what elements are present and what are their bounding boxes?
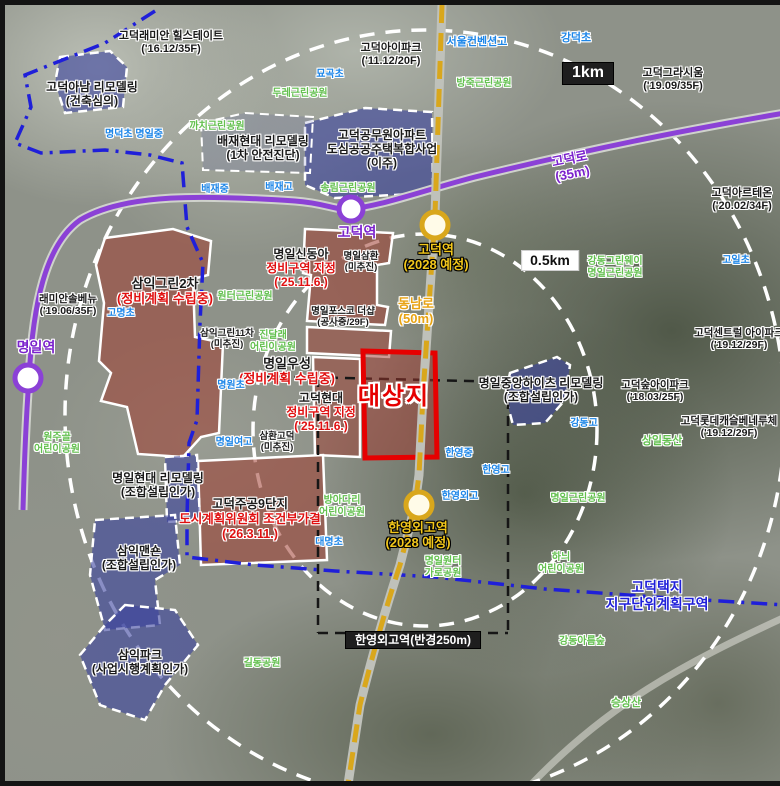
label-gomyeong-elementary-line-0: 고명초: [107, 308, 135, 320]
label-godeok-arteon-line-1: ('20.02/34F): [712, 200, 773, 213]
label-myogok-elementary-line-0: 묘곡초: [316, 69, 344, 81]
label-godeok-jugong9-line-2: ('26.3.11.): [179, 527, 320, 542]
label-hanyeong-station-radius-line-0: 한영외고역(반경250m): [355, 633, 471, 647]
label-myeongil-wonteo-park-line-0: 명일원터: [425, 556, 462, 568]
label-myeongwon-elementary-line-0: 명원초: [217, 380, 245, 392]
label-godeok-gracium-line-0: 고덕그라시움: [643, 67, 704, 80]
label-gangdong-areumsoop: 강동아름숲: [559, 636, 605, 648]
label-myeongil-park: 명일근린공원: [550, 493, 605, 505]
label-godeok-soop-ipark-line-0: 고덕숲아이파크: [621, 379, 689, 391]
label-godeok-arteon: 고덕아르테온('20.02/34F): [712, 187, 773, 213]
label-myeongil-girls-high-line-0: 명일여고: [216, 437, 253, 449]
label-myeongdeok-myeongil-school: 명덕초 명일중: [105, 129, 163, 141]
label-godeok-station-line-0: 고덕역: [338, 224, 377, 241]
label-baejae-middle-line-0: 배재중: [201, 184, 229, 196]
label-gangdeok-elementary-line-0: 강덕초: [561, 32, 591, 45]
label-gildong-park: 길동공원: [244, 658, 281, 670]
label-myeongil-posco-line-0: 명일포스코 더샵: [311, 306, 375, 317]
label-godeok-official-apt-line-1: 도심공공주택복합사업: [327, 142, 437, 156]
label-samik-park: 삼익파크(사업시행계획인가): [92, 648, 188, 676]
label-myeongil-samhwan-line-1: (미추진): [344, 262, 379, 273]
label-hanyeong-station-2028-line-0: 한영외고역: [385, 520, 450, 535]
label-godeok-raemian-hillstate: 고덕래미안 힐스테이트('16.12/35F): [119, 30, 223, 56]
label-goil-elementary: 고일초: [722, 255, 750, 267]
label-godeok-anam-remodeling: 고덕아남 리모델링(건축심의): [46, 80, 138, 108]
label-hanyeong-high-line-0: 한영고: [482, 465, 510, 477]
scale-05km-line-0: 0.5km: [530, 252, 570, 269]
label-godeok-station: 고덕역: [338, 224, 377, 241]
label-jindallae-park-line-0: 진달래: [250, 330, 296, 342]
label-myeongil-posco-line-1: (공사중/29F): [311, 317, 375, 328]
label-baejae-hyundai-remodeling-line-0: 배재현대 리모델링: [217, 134, 309, 148]
label-myeongil-wooseong: 명일우성(정비계획 수립중): [239, 356, 335, 387]
label-godeok-station-2028: 고덕역(2028 예정): [403, 242, 468, 273]
label-kkachi-park: 까치근린공원: [189, 121, 244, 133]
label-wonjugol-park-line-1: 어린이공원: [34, 444, 80, 456]
label-myeongil-hyundai-remodeling: 명일현대 리모델링(조합설립인가): [112, 471, 204, 499]
label-baejae-high: 배재고: [265, 182, 293, 194]
label-gangdong-high: 강동고: [570, 418, 598, 430]
label-raemian-solbenyu-line-1: ('19.06/35F): [39, 305, 97, 317]
label-samik-green2: 삼익그린2차(정비계획 수립중): [117, 276, 213, 307]
label-godeok-lotte-castle: 고덕롯데캐슬베네루체('19.12/29F): [681, 415, 778, 440]
label-godeok-official-apt-line-0: 고덕공무원아파트: [327, 128, 437, 142]
scale-05km: 0.5km: [521, 250, 579, 271]
label-dongnam-ro-line-0: 동남로: [398, 296, 434, 311]
label-godeok-gracium: 고덕그라시움('19.09/35F): [643, 67, 704, 93]
label-hanyeong-high: 한영고: [482, 465, 510, 477]
label-songnim-park: 송림근린공원: [320, 183, 375, 195]
label-myeongil-jungang-heights: 명일중앙하이츠 리모델링(조합설립인가): [479, 376, 604, 404]
label-raemian-solbenyu: 래미안솔베뉴('19.06/35F): [39, 293, 97, 318]
label-hanyeong-middle-line-0: 한영중: [445, 448, 473, 460]
label-godeok-raemian-hillstate-line-0: 고덕래미안 힐스테이트: [119, 30, 223, 43]
label-myeongil-jungang-heights-line-1: (조합설립인가): [479, 390, 604, 404]
label-samhwan-godeok-line-1: (미추진): [260, 442, 295, 453]
label-gildong-park-line-0: 길동공원: [244, 658, 281, 670]
label-godeok-station-2028-line-0: 고덕역: [403, 242, 468, 257]
label-raemian-solbenyu-line-0: 래미안솔베뉴: [39, 293, 97, 305]
label-godeok-anam-remodeling-line-0: 고덕아남 리모델링: [46, 80, 138, 94]
label-gangdong-areumsoop-line-0: 강동아름숲: [559, 636, 605, 648]
label-kkachi-park-line-0: 까치근린공원: [189, 121, 244, 133]
label-myeongil-hyundai-remodeling-line-0: 명일현대 리모델링: [112, 471, 204, 485]
label-samik-park-line-0: 삼익파크: [92, 648, 188, 662]
label-godeok-hyundai-line-2: ('25.11.6.): [286, 419, 356, 433]
label-seungsangsan-line-0: 승상산: [611, 697, 641, 710]
label-daesangji: 대상지: [358, 383, 430, 411]
label-hanyeong-station-2028-line-1: (2028 예정): [385, 535, 450, 550]
label-hanyeong-foreign-high-line-0: 한영외고: [442, 491, 479, 503]
label-myogok-elementary: 묘곡초: [316, 69, 344, 81]
label-baejae-middle: 배재중: [201, 184, 229, 196]
label-myeongil-samhwan: 명일삼환(미추진): [344, 251, 379, 273]
label-myeongil-posco: 명일포스코 더샵(공사중/29F): [311, 306, 375, 328]
label-godeok-ipark-line-1: ('11.12/20F): [361, 55, 422, 68]
label-godeok-official-apt: 고덕공무원아파트도심공공주택복합사업(이주): [327, 128, 437, 170]
label-samik-green11-line-0: 삼익그린11차: [200, 328, 254, 339]
label-godeok-station-2028-line-1: (2028 예정): [403, 257, 468, 272]
label-godeok-soop-ipark-line-1: ('18.03/25F): [621, 391, 689, 403]
label-wonjugol-park-line-0: 원주골: [34, 432, 80, 444]
label-bangjuk-park-line-0: 방죽근린공원: [456, 78, 511, 90]
label-godeok-lotte-castle-line-1: ('19.12/29F): [681, 427, 778, 439]
scale-1km: 1km: [562, 62, 614, 85]
label-godeok-hyundai: 고덕현대정비구역 지정('25.11.6.): [286, 391, 356, 433]
label-bangadari-park-line-1: 어린이공원: [319, 507, 365, 519]
label-hanyeong-foreign-high: 한영외고: [442, 491, 479, 503]
label-seoul-convention-high: 서울컨벤션고: [447, 36, 508, 49]
label-myeongil-sindonga: 명일신동아정비구역 지정('25.11.6.): [266, 247, 336, 289]
label-godeok-ro: 고덕로(35m): [550, 148, 591, 185]
label-myeongil-wonteo-park-line-1: 가로공원: [425, 568, 462, 580]
label-samhwan-godeok: 삼환고덕(미추진): [260, 431, 295, 453]
label-bangadari-park: 방아다리어린이공원: [319, 495, 365, 519]
label-myeongil-station: 명일역: [17, 339, 56, 356]
label-hanyeong-station-radius: 한영외고역(반경250m): [345, 631, 481, 649]
scale-1km-line-0: 1km: [572, 64, 604, 83]
label-samik-green11-line-1: (미추진): [200, 339, 254, 350]
label-godeok-central-ipark: 고덕센트럴 아이파크('19.12/29F): [694, 327, 780, 352]
label-samik-mansion: 삼익맨숀(조합설립인가): [102, 544, 176, 572]
label-myeongil-wooseong-line-0: 명일우성: [239, 356, 335, 371]
label-seoul-convention-high-line-0: 서울컨벤션고: [447, 36, 508, 49]
label-bangadari-park-line-0: 방아다리: [319, 495, 365, 507]
label-samhwan-godeok-line-0: 삼환고덕: [260, 431, 295, 442]
label-godeok-anam-remodeling-line-1: (건축심의): [46, 94, 138, 108]
label-myeongil-girls-high: 명일여고: [216, 437, 253, 449]
label-dongnam-ro: 동남로(50m): [398, 296, 434, 327]
label-myeongil-sindonga-line-2: ('25.11.6.): [266, 275, 336, 289]
label-wonteo-park: 원터근린공원: [217, 291, 272, 303]
label-jindallae-park-line-1: 어린이공원: [250, 342, 296, 354]
label-godeok-hyundai-line-1: 정비구역 지정: [286, 405, 356, 419]
label-daesangji-line-0: 대상지: [358, 383, 430, 411]
label-godeok-jugong9-line-1: 도시계획위원회 조건부가결: [179, 512, 320, 527]
label-godeok-central-ipark-line-0: 고덕센트럴 아이파크: [694, 327, 780, 339]
label-hanyeong-station-2028: 한영외고역(2028 예정): [385, 520, 450, 551]
label-baejae-hyundai-remodeling-line-1: (1차 안전진단): [217, 148, 309, 162]
label-godeok-arteon-line-0: 고덕아르테온: [712, 187, 773, 200]
label-myeongwon-elementary: 명원초: [217, 380, 245, 392]
label-gangdong-high-line-0: 강동고: [570, 418, 598, 430]
label-godeok-taekji-district-line-0: 고덕택지: [605, 579, 708, 596]
label-daemyeong-elementary-line-0: 대명초: [315, 537, 343, 549]
label-myeongil-samhwan-line-0: 명일삼환: [344, 251, 379, 262]
label-wonjugol-park: 원주골어린이공원: [34, 432, 80, 456]
label-myeongil-sindonga-line-1: 정비구역 지정: [266, 261, 336, 275]
label-godeok-taekji-district: 고덕택지지구단위계획구역: [605, 579, 708, 612]
label-godeok-soop-ipark: 고덕숲아이파크('18.03/25F): [621, 379, 689, 404]
label-myeongil-park-line-0: 명일근린공원: [550, 493, 605, 505]
label-samik-mansion-line-0: 삼익맨숀: [102, 544, 176, 558]
label-samik-green2-line-1: (정비계획 수립중): [117, 291, 213, 306]
label-myeongil-station-line-0: 명일역: [17, 339, 56, 356]
label-godeok-official-apt-line-2: (이주): [327, 156, 437, 170]
label-dure-park: 두레근린공원: [272, 88, 327, 100]
label-dure-park-line-0: 두레근린공원: [272, 88, 327, 100]
label-gangdong-greenway-park-line-0: 강동그린웨이: [587, 256, 642, 268]
label-hanui-park-line-0: 하늬: [538, 552, 584, 564]
label-godeok-taekji-district-line-1: 지구단위계획구역: [605, 596, 708, 613]
label-myeongil-wooseong-line-1: (정비계획 수립중): [239, 371, 335, 386]
label-gangdong-greenway-park-line-1: 명일근린공원: [587, 268, 642, 280]
label-hanui-park-line-1: 어린이공원: [538, 564, 584, 576]
label-gangdeok-elementary: 강덕초: [561, 32, 591, 45]
label-seungsangsan: 승상산: [611, 697, 641, 710]
label-samik-green11: 삼익그린11차(미추진): [200, 328, 254, 350]
label-myeongil-sindonga-line-0: 명일신동아: [266, 247, 336, 261]
label-myeongil-wonteo-park: 명일원터가로공원: [425, 556, 462, 580]
label-myeongdeok-myeongil-school-line-0: 명덕초 명일중: [105, 129, 163, 141]
label-songnim-park-line-0: 송림근린공원: [320, 183, 375, 195]
map-canvas[interactable]: 고덕래미안 힐스테이트('16.12/35F)고덕아남 리모델링(건축심의)고덕…: [0, 0, 780, 786]
map-labels-layer: 고덕래미안 힐스테이트('16.12/35F)고덕아남 리모델링(건축심의)고덕…: [5, 5, 780, 781]
label-bangjuk-park: 방죽근린공원: [456, 78, 511, 90]
label-godeok-jugong9: 고덕주공9단지도시계획위원회 조건부가결('26.3.11.): [179, 497, 320, 541]
label-samik-mansion-line-1: (조합설립인가): [102, 558, 176, 572]
label-baejae-hyundai-remodeling: 배재현대 리모델링(1차 안전진단): [217, 134, 309, 162]
label-godeok-central-ipark-line-1: ('19.12/29F): [694, 339, 780, 351]
label-goil-elementary-line-0: 고일초: [722, 255, 750, 267]
label-daemyeong-elementary: 대명초: [315, 537, 343, 549]
label-dongnam-ro-line-1: (50m): [398, 311, 434, 326]
label-godeok-hyundai-line-0: 고덕현대: [286, 391, 356, 405]
label-samik-park-line-1: (사업시행계획인가): [92, 662, 188, 676]
label-sangil-dongsan: 상일동산: [642, 435, 682, 448]
label-godeok-lotte-castle-line-0: 고덕롯데캐슬베네루체: [681, 415, 778, 427]
label-baejae-high-line-0: 배재고: [265, 182, 293, 194]
label-myeongil-jungang-heights-line-0: 명일중앙하이츠 리모델링: [479, 376, 604, 390]
label-gangdong-greenway-park: 강동그린웨이명일근린공원: [587, 256, 642, 280]
label-godeok-jugong9-line-0: 고덕주공9단지: [179, 497, 320, 512]
label-godeok-ipark-line-0: 고덕아이파크: [361, 42, 422, 55]
label-sangil-dongsan-line-0: 상일동산: [642, 435, 682, 448]
label-samik-green2-line-0: 삼익그린2차: [117, 276, 213, 291]
label-jindallae-park: 진달래어린이공원: [250, 330, 296, 354]
label-hanui-park: 하늬어린이공원: [538, 552, 584, 576]
label-godeok-raemian-hillstate-line-1: ('16.12/35F): [119, 43, 223, 56]
label-hanyeong-middle: 한영중: [445, 448, 473, 460]
label-godeok-ipark: 고덕아이파크('11.12/20F): [361, 42, 422, 68]
label-godeok-gracium-line-1: ('19.09/35F): [643, 80, 704, 93]
label-gomyeong-elementary: 고명초: [107, 308, 135, 320]
label-wonteo-park-line-0: 원터근린공원: [217, 291, 272, 303]
